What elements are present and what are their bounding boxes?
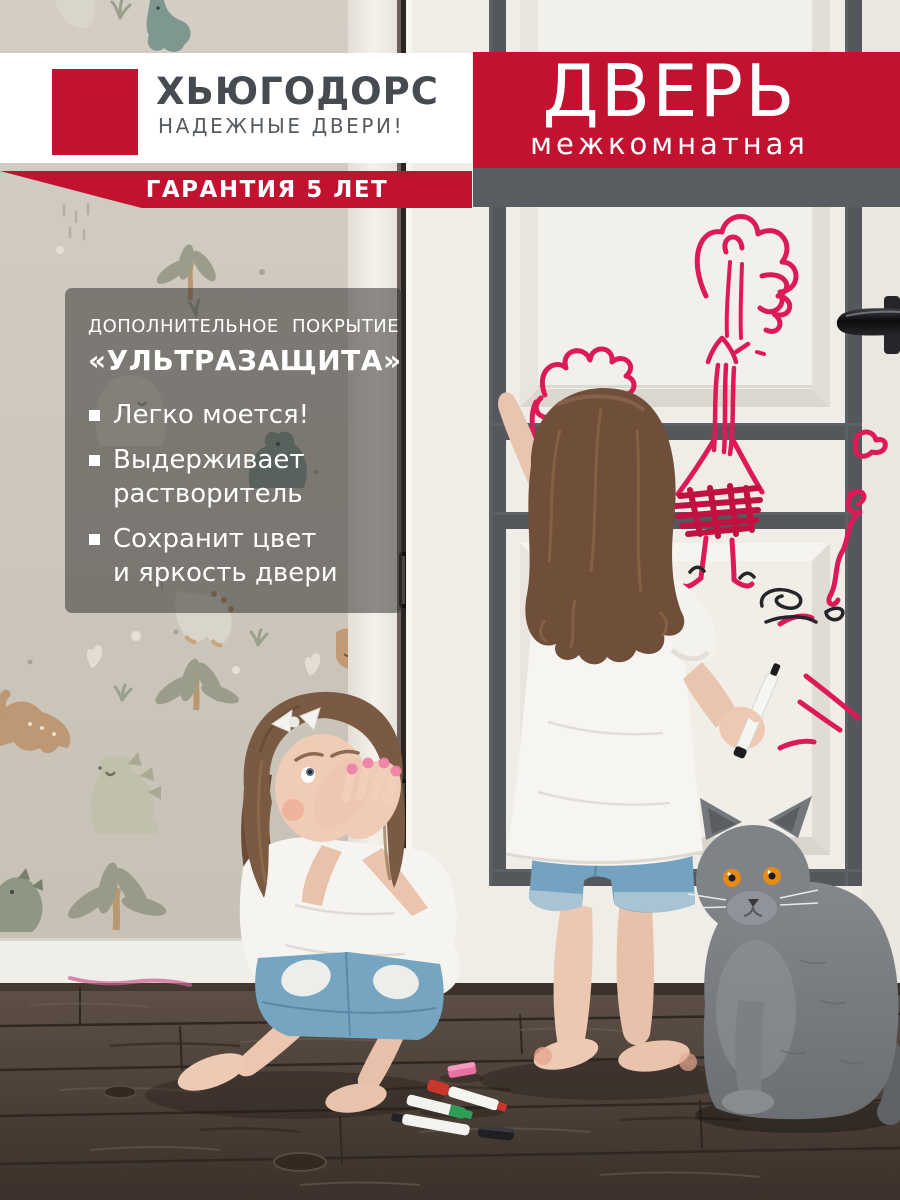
feature-item: Выдерживает растворитель: [88, 443, 384, 511]
feature-item: Сохранит цвет и яркость двери: [88, 522, 384, 590]
square-bullet-icon: [89, 534, 100, 545]
title-underbar: [473, 168, 900, 207]
feature-item: Легко моется!: [88, 398, 384, 432]
coating-name: «УЛЬТРАЗАЩИТА»: [88, 344, 384, 377]
brand-name: ХЬЮГОДОРС: [156, 70, 439, 113]
brand-logo-mark: [52, 69, 138, 155]
feature-text: Выдерживает растворитель: [113, 443, 305, 511]
guarantee-text: ГАРАНТИЯ 5 ЛЕТ: [146, 177, 389, 203]
coating-intro: ДОПОЛНИТЕЛЬНОЕ ПОКРЫТИЕ: [88, 316, 384, 337]
feature-text: Легко моется!: [113, 398, 309, 432]
product-title: ДВЕРЬ: [473, 52, 866, 130]
feature-list: Легко моется! Выдерживает растворитель С…: [88, 398, 384, 590]
ad-banner: ХЬЮГОДОРС НАДЕЖНЫЕ ДВЕРИ! ГАРАНТИЯ 5 ЛЕТ…: [0, 0, 900, 1200]
features-panel: ДОПОЛНИТЕЛЬНОЕ ПОКРЫТИЕ «УЛЬТРАЗАЩИТА» Л…: [65, 288, 402, 613]
brand-logo-card: ХЬЮГОДОРС НАДЕЖНЫЕ ДВЕРИ!: [0, 53, 472, 163]
product-title-block: ДВЕРЬ межкомнатная: [473, 52, 900, 168]
brand-tagline: НАДЕЖНЫЕ ДВЕРИ!: [158, 114, 404, 138]
product-subtitle: межкомнатная: [473, 127, 866, 161]
square-bullet-icon: [89, 455, 100, 466]
feature-text: Сохранит цвет и яркость двери: [113, 522, 338, 590]
square-bullet-icon: [89, 410, 100, 421]
